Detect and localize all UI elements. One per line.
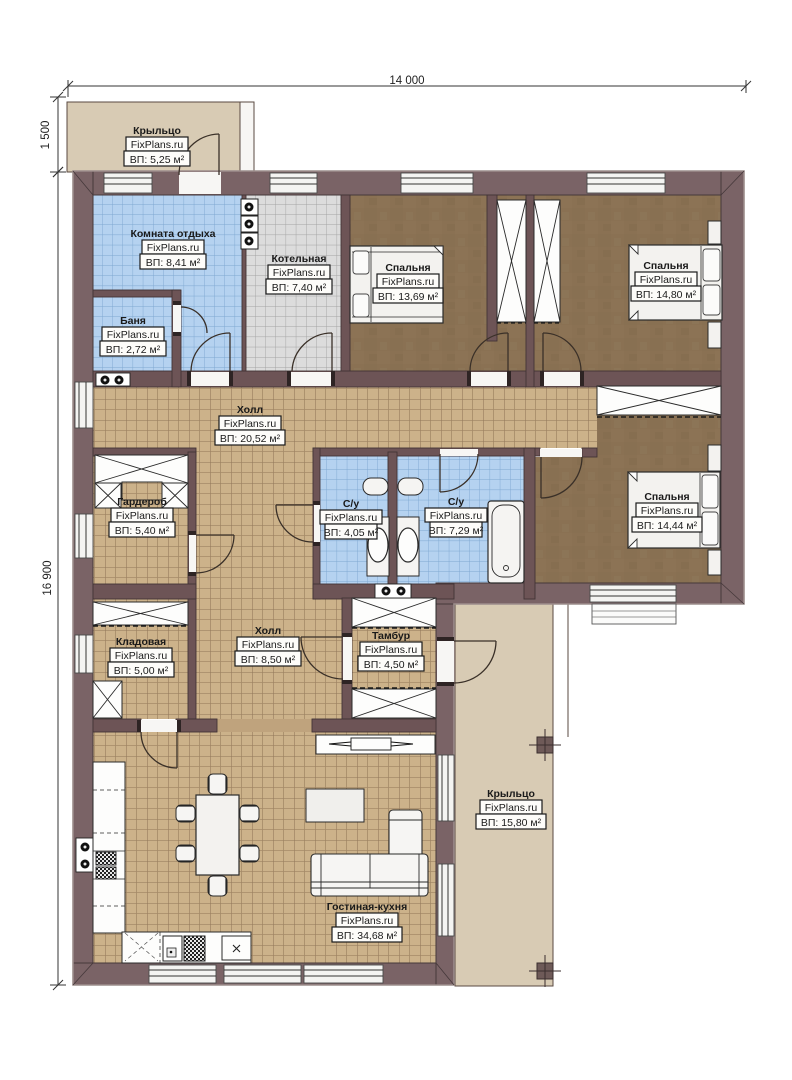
svg-text:ВП: 14,80 м²: ВП: 14,80 м² [636, 289, 697, 301]
svg-text:FixPlans.ru: FixPlans.ru [640, 274, 693, 286]
svg-text:Комната отдыха: Комната отдыха [131, 228, 216, 240]
svg-text:FixPlans.ru: FixPlans.ru [641, 505, 694, 517]
svg-text:ВП: 8,41 м²: ВП: 8,41 м² [146, 257, 201, 269]
svg-text:FixPlans.ru: FixPlans.ru [365, 644, 418, 656]
svg-text:Котельная: Котельная [272, 253, 327, 265]
svg-text:16 900: 16 900 [42, 560, 54, 595]
svg-text:Спальня: Спальня [644, 491, 689, 503]
svg-text:Крыльцо: Крыльцо [487, 788, 535, 800]
svg-text:Холл: Холл [255, 625, 281, 637]
svg-text:Спальня: Спальня [385, 262, 430, 274]
svg-text:Тамбур: Тамбур [372, 630, 410, 642]
svg-text:ВП: 7,40 м²: ВП: 7,40 м² [272, 282, 327, 294]
svg-text:FixPlans.ru: FixPlans.ru [147, 242, 200, 254]
svg-text:ВП: 4,05 м²: ВП: 4,05 м² [324, 527, 379, 539]
svg-text:FixPlans.ru: FixPlans.ru [273, 267, 326, 279]
svg-text:ВП: 5,25 м²: ВП: 5,25 м² [130, 154, 185, 166]
svg-text:FixPlans.ru: FixPlans.ru [382, 276, 435, 288]
svg-text:FixPlans.ru: FixPlans.ru [131, 139, 184, 151]
svg-text:Гостиная-кухня: Гостиная-кухня [327, 901, 407, 913]
svg-text:FixPlans.ru: FixPlans.ru [116, 510, 169, 522]
svg-text:FixPlans.ru: FixPlans.ru [341, 915, 394, 927]
svg-text:ВП: 8,50 м²: ВП: 8,50 м² [241, 654, 296, 666]
svg-text:FixPlans.ru: FixPlans.ru [115, 650, 168, 662]
svg-text:ВП: 5,00 м²: ВП: 5,00 м² [114, 665, 169, 677]
svg-text:ВП: 34,68 м²: ВП: 34,68 м² [337, 930, 398, 942]
svg-text:ВП: 20,52 м²: ВП: 20,52 м² [220, 433, 281, 445]
svg-text:Холл: Холл [237, 404, 263, 416]
svg-text:FixPlans.ru: FixPlans.ru [325, 512, 378, 524]
svg-text:Гардероб: Гардероб [117, 496, 167, 508]
svg-text:Баня: Баня [120, 315, 146, 327]
svg-text:Спальня: Спальня [643, 260, 688, 272]
svg-text:1 500: 1 500 [40, 121, 52, 150]
svg-text:ВП: 4,50 м²: ВП: 4,50 м² [364, 659, 419, 671]
svg-text:ВП: 14,44 м²: ВП: 14,44 м² [637, 520, 698, 532]
svg-text:FixPlans.ru: FixPlans.ru [430, 510, 483, 522]
svg-text:С/у: С/у [343, 498, 360, 510]
svg-text:ВП: 15,80 м²: ВП: 15,80 м² [481, 817, 542, 829]
svg-text:FixPlans.ru: FixPlans.ru [224, 418, 277, 430]
svg-text:ВП: 5,40 м²: ВП: 5,40 м² [115, 525, 170, 537]
svg-text:FixPlans.ru: FixPlans.ru [485, 802, 538, 814]
svg-text:С/у: С/у [448, 496, 465, 508]
svg-text:ВП: 2,72 м²: ВП: 2,72 м² [106, 344, 161, 356]
svg-text:ВП: 7,29 м²: ВП: 7,29 м² [429, 525, 484, 537]
svg-text:14 000: 14 000 [389, 75, 424, 87]
svg-text:FixPlans.ru: FixPlans.ru [107, 329, 160, 341]
svg-text:FixPlans.ru: FixPlans.ru [242, 639, 295, 651]
svg-text:ВП: 13,69 м²: ВП: 13,69 м² [378, 291, 439, 303]
svg-text:Крыльцо: Крыльцо [133, 125, 181, 137]
svg-text:Кладовая: Кладовая [116, 636, 166, 648]
